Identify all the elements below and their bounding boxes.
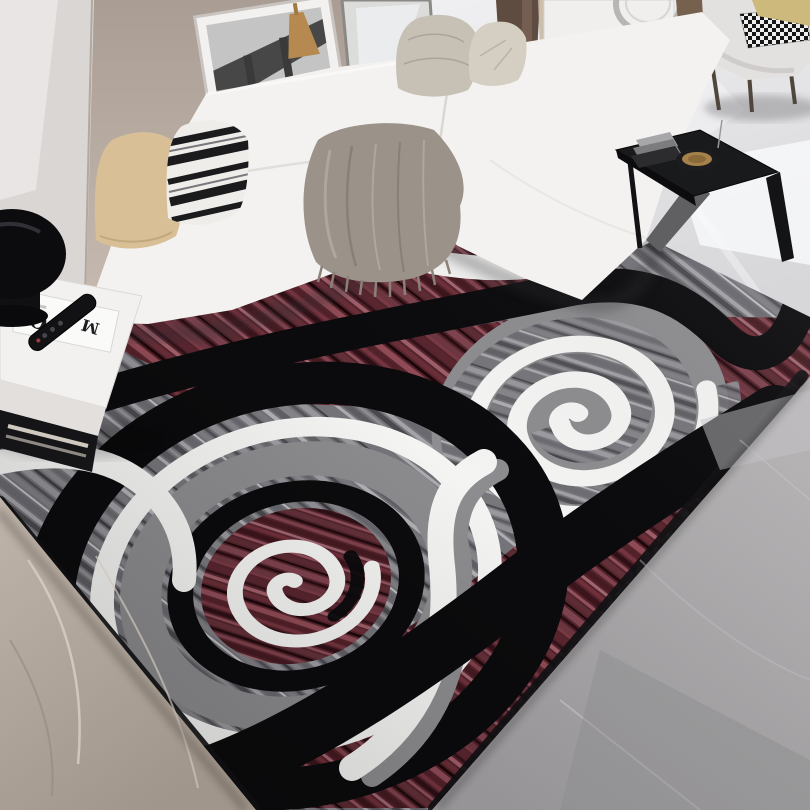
living-room-rug-photo: O M: [0, 0, 810, 810]
knit-pillow: [396, 15, 478, 97]
tray-inner-shadow: [688, 155, 706, 163]
blanket-body: [304, 123, 464, 282]
knit-pillow-light: [469, 22, 527, 86]
photo-stage: O M: [0, 0, 810, 810]
